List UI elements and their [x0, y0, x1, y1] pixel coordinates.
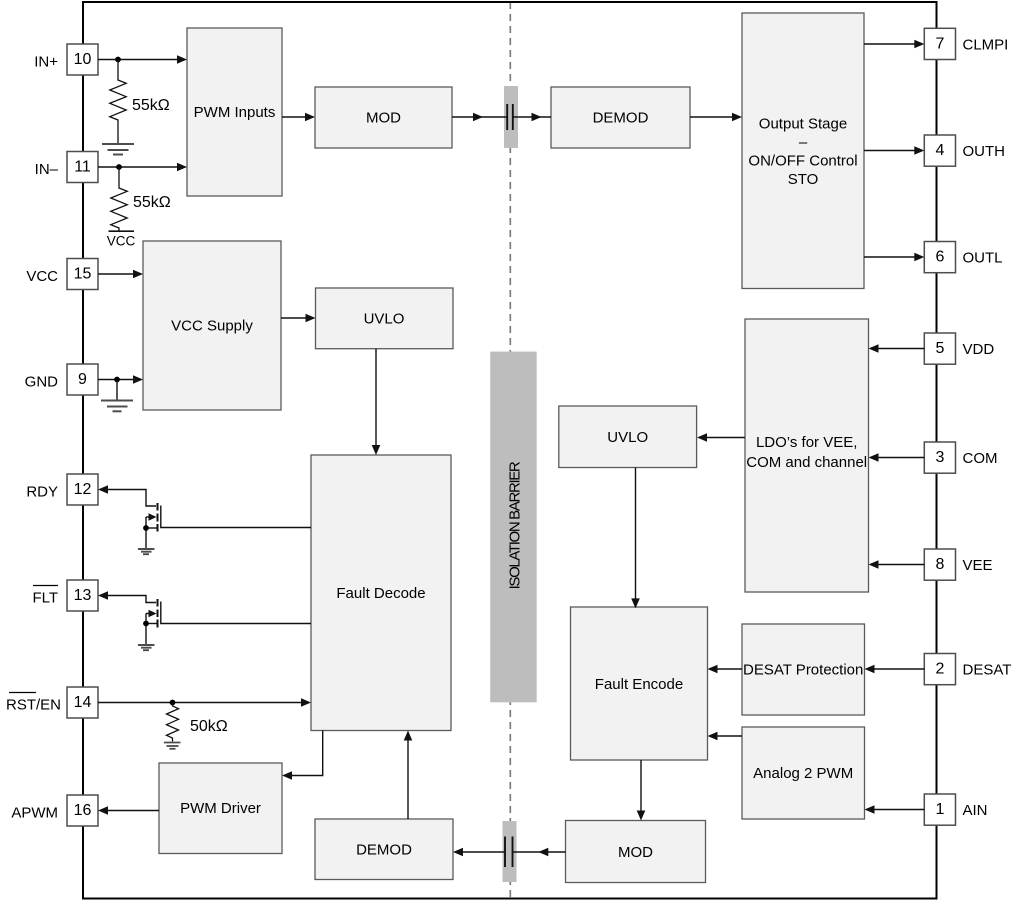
svg-text:APWM: APWM [11, 805, 58, 822]
svg-text:VEE: VEE [963, 557, 993, 574]
svg-text:IN–: IN– [35, 161, 59, 178]
svg-text:11: 11 [74, 159, 91, 176]
svg-text:12: 12 [74, 481, 92, 498]
svg-text:10: 10 [74, 51, 92, 68]
svg-text:–: – [799, 134, 808, 151]
svg-text:7: 7 [935, 35, 944, 52]
svg-text:13: 13 [74, 587, 92, 604]
svg-text:COM: COM [963, 450, 998, 467]
svg-text:OUTL: OUTL [963, 250, 1003, 267]
svg-text:RST/EN: RST/EN [6, 697, 61, 714]
svg-text:PWM Inputs: PWM Inputs [194, 104, 276, 121]
svg-text:Fault Decode: Fault Decode [336, 585, 425, 602]
svg-text:AIN: AIN [963, 802, 988, 819]
svg-text:LDO’s for VEE,: LDO’s for VEE, [756, 434, 857, 451]
svg-text:3: 3 [935, 449, 944, 466]
svg-text:9: 9 [78, 371, 87, 388]
svg-text:VCC: VCC [107, 234, 136, 249]
svg-text:DESAT Protection: DESAT Protection [743, 662, 863, 679]
svg-text:55kΩ: 55kΩ [133, 194, 171, 211]
svg-text:VCC: VCC [26, 268, 58, 285]
svg-text:16: 16 [74, 802, 92, 819]
svg-text:PWM Driver: PWM Driver [180, 800, 261, 817]
svg-text:ON/OFF Control: ON/OFF Control [748, 153, 857, 170]
svg-text:ISOLATION BARRIER: ISOLATION BARRIER [507, 461, 524, 589]
svg-text:VDD: VDD [963, 341, 995, 358]
svg-text:MOD: MOD [618, 844, 653, 861]
svg-text:IN+: IN+ [34, 54, 58, 71]
svg-text:VCC Supply: VCC Supply [171, 318, 253, 335]
svg-text:MOD: MOD [366, 110, 401, 127]
svg-text:2: 2 [935, 661, 944, 678]
svg-text:14: 14 [74, 694, 92, 711]
svg-text:DEMOD: DEMOD [593, 110, 649, 127]
svg-text:FLT: FLT [32, 590, 58, 607]
svg-text:8: 8 [935, 556, 944, 573]
svg-text:OUTH: OUTH [963, 143, 1006, 160]
svg-text:Analog 2 PWM: Analog 2 PWM [753, 765, 853, 782]
svg-text:DESAT: DESAT [963, 662, 1012, 679]
svg-text:50kΩ: 50kΩ [190, 718, 228, 735]
svg-text:Output Stage: Output Stage [759, 116, 847, 133]
svg-text:55kΩ: 55kΩ [132, 97, 170, 114]
svg-text:RDY: RDY [26, 484, 58, 501]
svg-text:6: 6 [935, 249, 944, 266]
svg-text:UVLO: UVLO [607, 429, 648, 446]
svg-text:STO: STO [788, 171, 819, 188]
svg-text:5: 5 [935, 340, 944, 357]
svg-text:15: 15 [74, 266, 92, 283]
svg-text:COM and channel: COM and channel [746, 454, 867, 471]
svg-text:1: 1 [935, 801, 944, 818]
svg-text:UVLO: UVLO [364, 311, 405, 328]
svg-text:DEMOD: DEMOD [356, 842, 412, 859]
svg-text:GND: GND [25, 374, 59, 391]
svg-text:4: 4 [935, 142, 944, 159]
svg-text:CLMPI: CLMPI [963, 37, 1009, 54]
svg-text:Fault Encode: Fault Encode [595, 676, 683, 693]
